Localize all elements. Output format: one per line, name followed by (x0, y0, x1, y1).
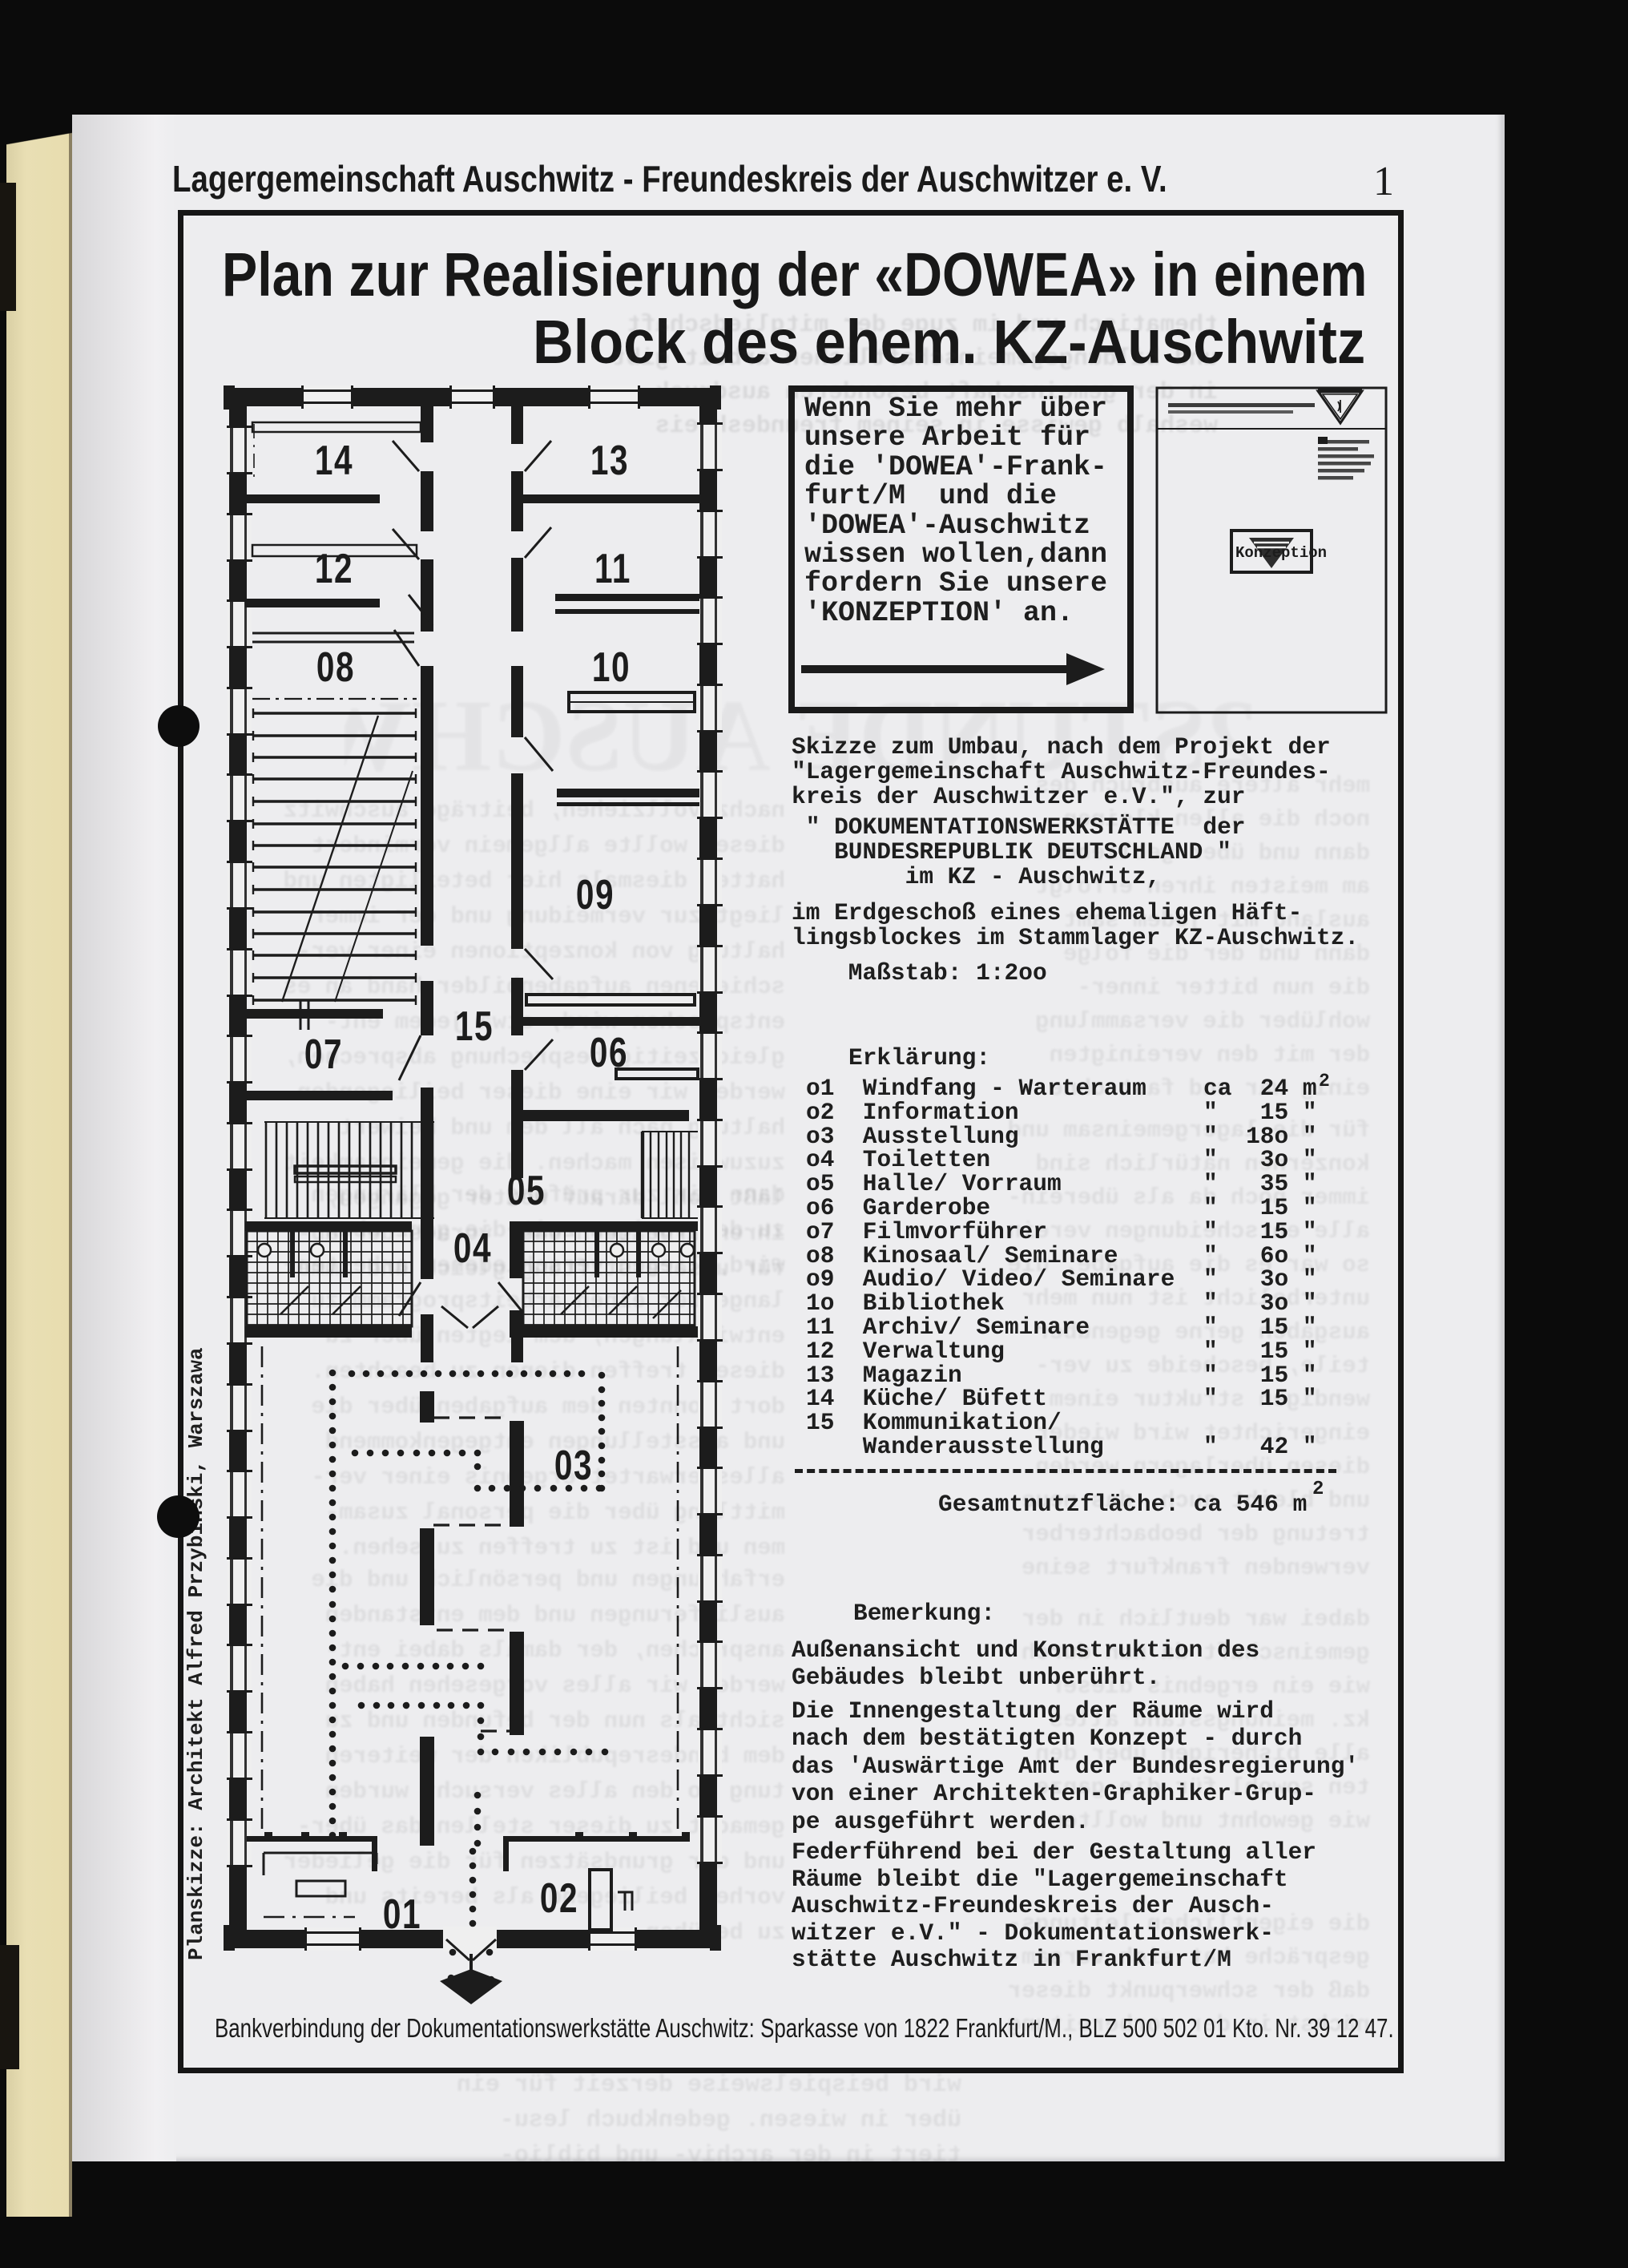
svg-text:03: 03 (554, 1442, 593, 1488)
svg-text:04: 04 (453, 1225, 492, 1271)
svg-text:12: 12 (315, 545, 353, 591)
svg-text:01: 01 (383, 1891, 421, 1937)
svg-text:14: 14 (315, 437, 353, 483)
svg-text:06: 06 (590, 1029, 628, 1075)
svg-text:13: 13 (590, 437, 629, 483)
svg-text:07: 07 (304, 1031, 343, 1077)
svg-text:05: 05 (507, 1167, 546, 1213)
svg-text:10: 10 (592, 644, 631, 690)
svg-text:11: 11 (594, 545, 631, 591)
svg-text:09: 09 (576, 871, 615, 918)
svg-text:08: 08 (316, 644, 355, 690)
svg-text:15: 15 (455, 1003, 494, 1049)
svg-text:02: 02 (540, 1875, 578, 1921)
